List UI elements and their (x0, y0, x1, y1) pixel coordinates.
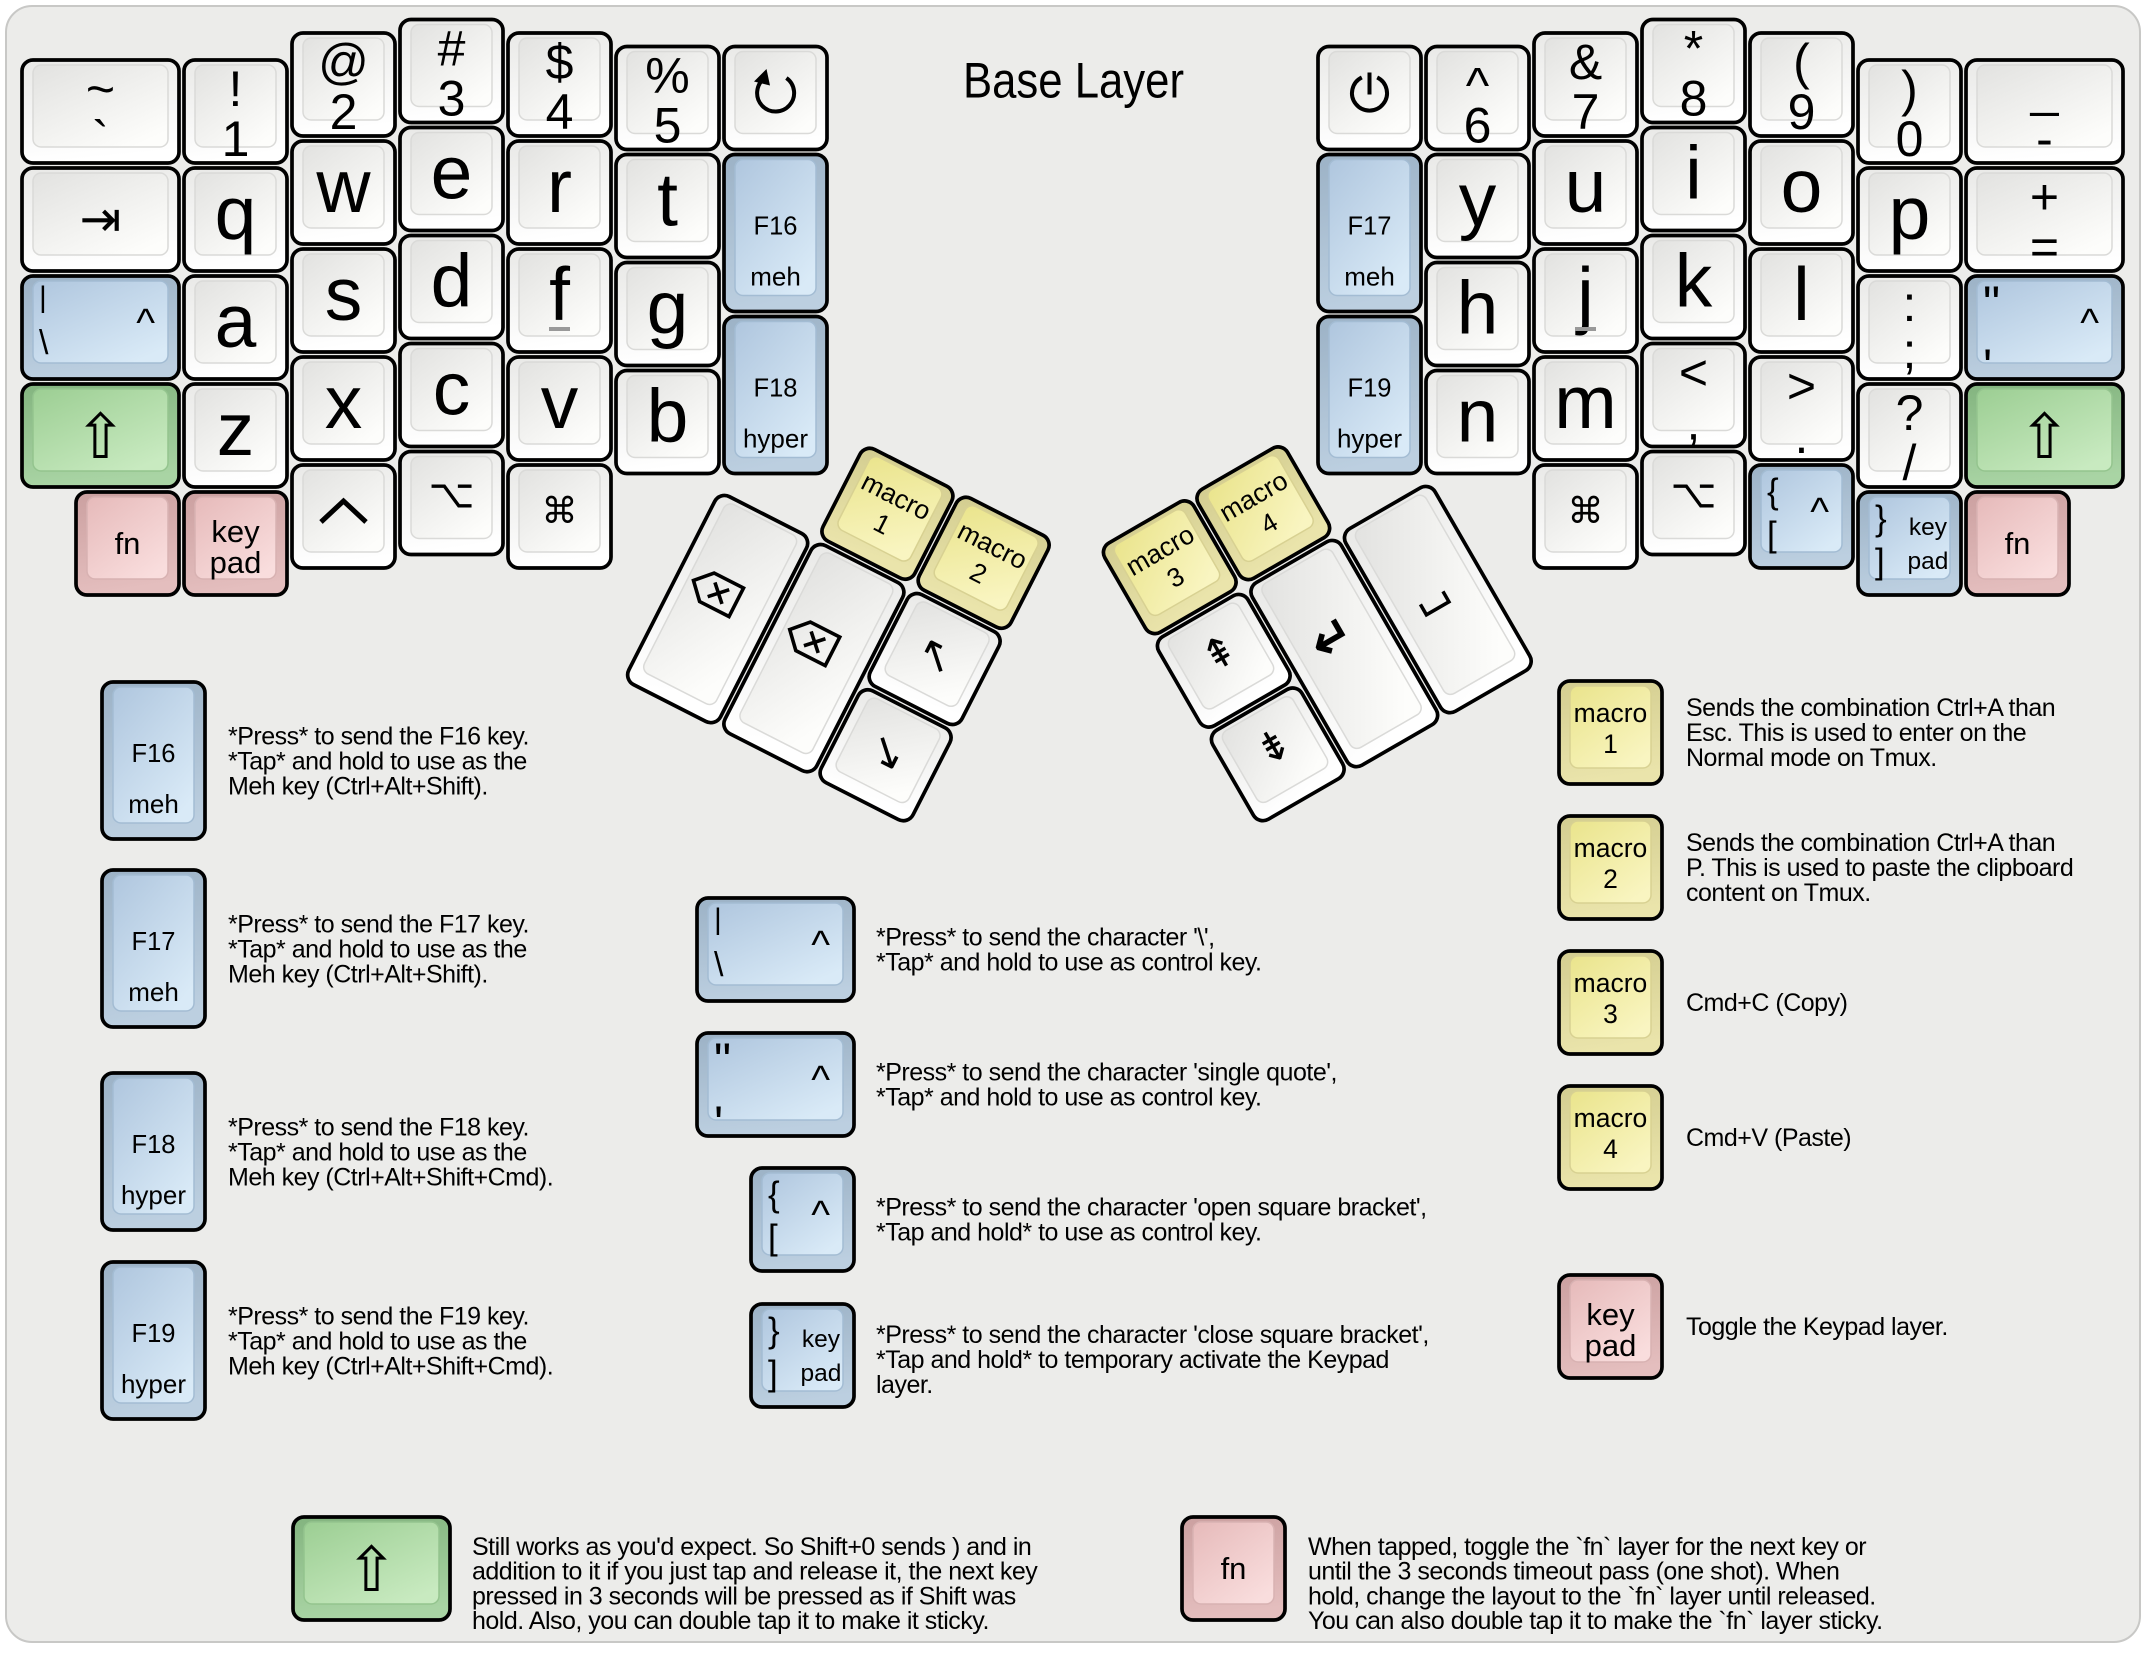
svg-text:F16: F16 (754, 213, 798, 241)
svg-text:o: o (1781, 144, 1823, 228)
svg-text:meh: meh (128, 789, 179, 819)
svg-text:+: + (2030, 169, 2059, 225)
svg-text:⌘: ⌘ (1568, 490, 1604, 531)
svg-text:⇥: ⇥ (80, 191, 122, 247)
svg-text:pad: pad (1585, 1328, 1637, 1363)
svg-text:content on Tmux.: content on Tmux. (1686, 879, 1871, 907)
svg-text:h: h (1457, 266, 1499, 350)
svg-text:Base Layer: Base Layer (963, 53, 1184, 109)
svg-text:[: [ (768, 1218, 778, 1257)
svg-text:{: { (768, 1175, 780, 1214)
svg-text:.: . (1795, 408, 1809, 464)
svg-text:layer.: layer. (876, 1371, 933, 1399)
svg-text:meh: meh (128, 977, 179, 1007)
svg-text:*Tap* and hold to use as the: *Tap* and hold to use as the (228, 936, 527, 964)
svg-text:^: ^ (136, 301, 155, 345)
svg-text:F18: F18 (132, 1131, 176, 1159)
svg-text:⌘: ⌘ (542, 490, 578, 531)
svg-text:p: p (1889, 171, 1931, 255)
svg-text:}: } (1875, 499, 1887, 538)
svg-text:hyper: hyper (121, 1180, 186, 1210)
svg-text:2: 2 (330, 84, 358, 140)
svg-text:addition to it if you just tap: addition to it if you just tap and relea… (472, 1558, 1038, 1586)
svg-text:*Press* to send the character: *Press* to send the character 'single qu… (876, 1059, 1337, 1087)
svg-text:x: x (325, 360, 363, 444)
svg-text:Toggle the Keypad layer.: Toggle the Keypad layer. (1686, 1313, 1948, 1341)
svg-text:a: a (215, 279, 257, 363)
svg-text:You can also double tap it to: You can also double tap it to make the `… (1308, 1607, 1883, 1635)
svg-text:m: m (1554, 360, 1616, 444)
svg-text:Sends the combination Ctrl+A t: Sends the combination Ctrl+A than (1686, 829, 2055, 857)
svg-text:_: _ (2030, 61, 2060, 117)
svg-text:⌥: ⌥ (428, 473, 474, 517)
svg-text:hold. Also, you can double tap: hold. Also, you can double tap it to mak… (472, 1607, 989, 1635)
svg-text:⇧: ⇧ (2019, 403, 2071, 472)
svg-text:u: u (1565, 144, 1607, 228)
svg-text:[: [ (1767, 515, 1777, 554)
svg-text:*Press* to send the F17 key.: *Press* to send the F17 key. (228, 911, 529, 939)
svg-text:fn: fn (2005, 526, 2031, 561)
svg-text:s: s (325, 252, 363, 336)
svg-text:F19: F19 (132, 1320, 176, 1348)
svg-text:macro: macro (1574, 833, 1648, 863)
svg-text:macro: macro (1574, 1103, 1648, 1133)
svg-text:c: c (433, 347, 471, 431)
svg-text:!: ! (229, 61, 243, 117)
svg-text:*Tap and hold* to temporary ac: *Tap and hold* to temporary activate the… (876, 1346, 1389, 1374)
svg-text:Sends the combination Ctrl+A t: Sends the combination Ctrl+A than (1686, 694, 2055, 722)
svg-text:fn: fn (1221, 1551, 1247, 1586)
svg-text:pad: pad (801, 1360, 842, 1387)
svg-text:key: key (1909, 514, 1948, 541)
svg-text:*Press* to send the F16 key.: *Press* to send the F16 key. (228, 723, 529, 751)
svg-text:⇧: ⇧ (75, 403, 127, 472)
svg-text:t: t (657, 158, 678, 242)
svg-text:z: z (217, 387, 255, 471)
svg-text:*Press* to send the F18 key.: *Press* to send the F18 key. (228, 1114, 529, 1142)
svg-text:7: 7 (1572, 84, 1600, 140)
svg-text:y: y (1459, 158, 1497, 242)
svg-text:pressed in 3 seconds will be p: pressed in 3 seconds will be pressed as … (472, 1582, 1016, 1610)
svg-text:n: n (1457, 374, 1499, 458)
svg-text:$: $ (546, 34, 574, 90)
svg-text:Esc. This is used to enter on: Esc. This is used to enter on the (1686, 719, 2026, 747)
svg-text:*Tap* and hold to use as the: *Tap* and hold to use as the (228, 748, 527, 776)
svg-text:{: { (1767, 472, 1779, 511)
svg-text:\: \ (714, 946, 724, 984)
svg-text:hyper: hyper (743, 424, 808, 454)
svg-text:pad: pad (210, 545, 262, 580)
svg-text:*Tap and hold* to use as contr: *Tap and hold* to use as control key. (876, 1218, 1261, 1246)
svg-text:macro: macro (1574, 698, 1648, 728)
svg-text:*: * (1684, 21, 1703, 77)
svg-text:^: ^ (811, 1058, 830, 1102)
svg-text:l: l (1793, 252, 1810, 336)
svg-text:key: key (1586, 1297, 1635, 1332)
svg-text:e: e (431, 131, 473, 215)
svg-text:2: 2 (1603, 864, 1618, 894)
svg-text:b: b (647, 374, 689, 458)
svg-text:\: \ (39, 324, 49, 362)
svg-text:%: % (645, 48, 689, 104)
svg-text:4: 4 (1603, 1134, 1618, 1164)
svg-text:F17: F17 (132, 928, 176, 956)
svg-text:key: key (211, 514, 260, 549)
svg-text:]: ] (768, 1354, 778, 1393)
svg-text:j: j (1575, 252, 1594, 336)
svg-text:^: ^ (1810, 490, 1829, 534)
svg-text:&: & (1569, 34, 1602, 90)
svg-text:w: w (315, 144, 371, 228)
svg-text:*Press* to send the character: *Press* to send the character 'open squa… (876, 1194, 1427, 1222)
svg-text:~: ~ (86, 61, 115, 117)
svg-text:^: ^ (811, 923, 830, 967)
svg-text:F19: F19 (1348, 375, 1392, 403)
svg-text:Meh key (Ctrl+Alt+Shift).: Meh key (Ctrl+Alt+Shift). (228, 772, 488, 800)
svg-text:(: ( (1793, 34, 1810, 90)
svg-text:0: 0 (1896, 111, 1924, 167)
svg-text:|: | (714, 903, 722, 936)
svg-text:fn: fn (115, 526, 141, 561)
svg-text:Normal mode on Tmux.: Normal mode on Tmux. (1686, 744, 1937, 772)
svg-text:Meh key (Ctrl+Alt+Shift+Cmd).: Meh key (Ctrl+Alt+Shift+Cmd). (228, 1163, 553, 1191)
svg-text:Meh key (Ctrl+Alt+Shift+Cmd).: Meh key (Ctrl+Alt+Shift+Cmd). (228, 1352, 553, 1380)
svg-text:^: ^ (811, 1193, 830, 1237)
svg-text:⇧: ⇧ (346, 1536, 398, 1605)
svg-text:P. This is used to paste the c: P. This is used to paste the clipboard (1686, 854, 2073, 882)
svg-text:g: g (647, 266, 689, 350)
svg-text:k: k (1675, 239, 1713, 323)
svg-text:): ) (1901, 61, 1918, 117)
svg-text:F17: F17 (1348, 213, 1392, 241)
svg-text:Cmd+C (Copy): Cmd+C (Copy) (1686, 989, 1847, 1017)
svg-text:<: < (1679, 345, 1708, 401)
svg-text:;: ; (1903, 323, 1917, 379)
svg-text:": " (1983, 278, 2000, 331)
svg-text:*Press* to send the F19 key.: *Press* to send the F19 key. (228, 1303, 529, 1331)
svg-text:*Press* to send the character: *Press* to send the character '\', (876, 924, 1215, 952)
svg-text:Still works as you'd expect. S: Still works as you'd expect. So Shift+0 … (472, 1533, 1031, 1561)
svg-text:4: 4 (546, 84, 574, 140)
svg-text:When tapped, toggle the `fn` l: When tapped, toggle the `fn` layer for t… (1308, 1533, 1866, 1561)
svg-text:hyper: hyper (1337, 424, 1402, 454)
svg-text:F16: F16 (132, 740, 176, 768)
svg-text:9: 9 (1788, 84, 1816, 140)
svg-text:5: 5 (654, 98, 682, 154)
svg-text:⌥: ⌥ (1670, 473, 1716, 517)
svg-text:d: d (431, 239, 473, 323)
svg-text:*Tap* and hold to use as the: *Tap* and hold to use as the (228, 1328, 527, 1356)
svg-text:^: ^ (2080, 301, 2099, 345)
svg-text:3: 3 (438, 71, 466, 127)
svg-text:*Press* to send the character: *Press* to send the character 'close squ… (876, 1321, 1429, 1349)
svg-text:meh: meh (1344, 262, 1395, 292)
svg-text:8: 8 (1680, 71, 1708, 127)
svg-text:macro: macro (1574, 968, 1648, 998)
svg-text:pad: pad (1908, 548, 1949, 575)
svg-text:*Tap* and hold to use as the: *Tap* and hold to use as the (228, 1139, 527, 1167)
svg-text:Meh key (Ctrl+Alt+Shift).: Meh key (Ctrl+Alt+Shift). (228, 960, 488, 988)
svg-text:until the 3 seconds timeout pa: until the 3 seconds timeout pass (one sh… (1308, 1558, 1839, 1586)
svg-text:r: r (547, 144, 572, 228)
svg-text:=: = (2030, 219, 2059, 275)
svg-text:,: , (1687, 395, 1701, 451)
svg-text:hyper: hyper (121, 1369, 186, 1399)
svg-text:/: / (1903, 435, 1917, 491)
svg-text:q: q (215, 171, 257, 255)
svg-text:i: i (1685, 131, 1702, 215)
svg-text:}: } (768, 1311, 780, 1350)
svg-text:v: v (541, 360, 579, 444)
svg-text:#: # (438, 21, 466, 77)
svg-text:meh: meh (750, 262, 801, 292)
svg-text:*Tap* and hold to use as contr: *Tap* and hold to use as control key. (876, 1083, 1261, 1111)
svg-text:1: 1 (1603, 729, 1618, 759)
svg-text:': ' (714, 1098, 723, 1151)
svg-text:?: ? (1896, 385, 1924, 441)
svg-text:`: ` (92, 111, 109, 167)
svg-text:@: @ (318, 34, 369, 90)
svg-text:key: key (802, 1326, 841, 1353)
svg-text:f: f (549, 252, 570, 336)
svg-text:6: 6 (1464, 98, 1492, 154)
svg-text:|: | (39, 281, 47, 314)
svg-text:]: ] (1875, 542, 1885, 581)
svg-text:hold, change the layout to the: hold, change the layout to the `fn` laye… (1308, 1582, 1876, 1610)
svg-text:>: > (1787, 358, 1816, 414)
svg-text:3: 3 (1603, 999, 1618, 1029)
svg-text:1: 1 (222, 111, 250, 167)
svg-text:Cmd+V (Paste): Cmd+V (Paste) (1686, 1124, 1851, 1152)
svg-text:F18: F18 (754, 375, 798, 403)
svg-text:-: - (2036, 111, 2053, 167)
svg-text:*Tap* and hold to use as contr: *Tap* and hold to use as control key. (876, 948, 1261, 976)
svg-text:": " (714, 1035, 731, 1088)
